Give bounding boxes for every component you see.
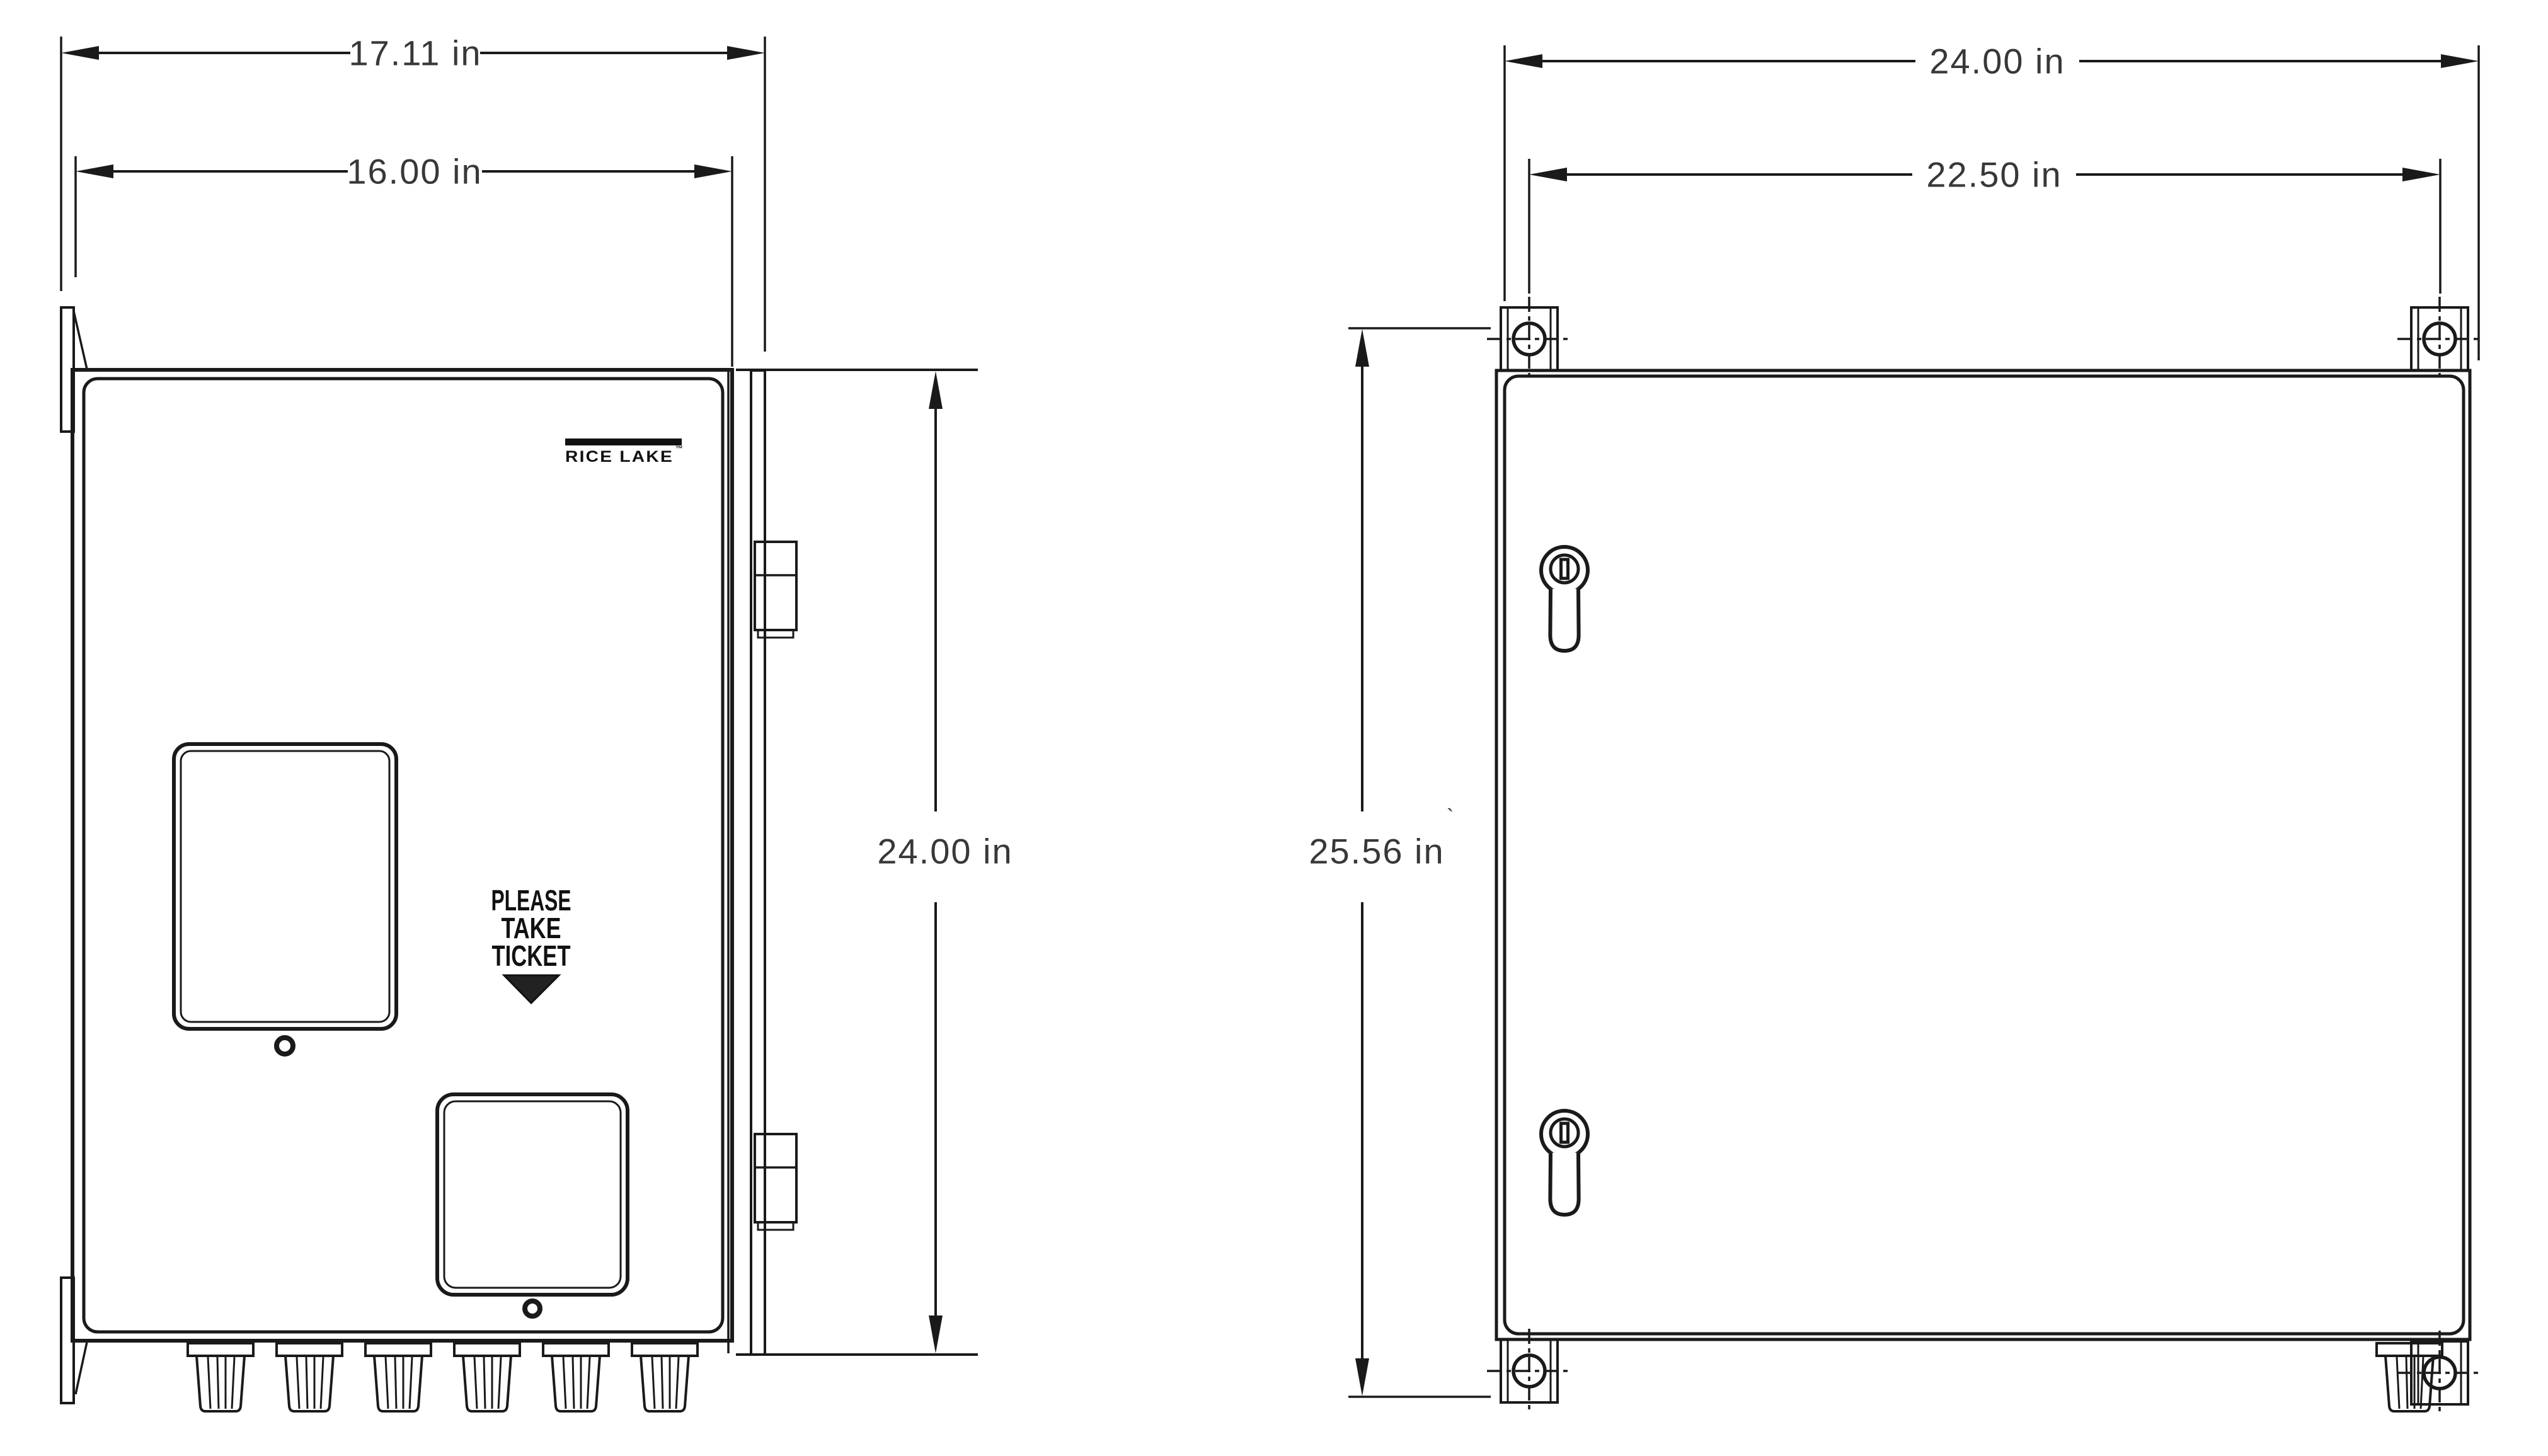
- enclosure-body-outline: [72, 370, 732, 1341]
- dim-label: 25.56 in: [1309, 832, 1444, 871]
- cable-gland-6: [632, 1343, 697, 1411]
- dim-label: 24.00 in: [1929, 42, 2065, 81]
- arrowhead-right: [2402, 168, 2440, 181]
- dim-label: 16.00 in: [347, 152, 482, 192]
- logo-trademark: ™: [675, 444, 683, 453]
- arrowhead-up: [1355, 329, 1369, 367]
- arrowhead-right: [727, 46, 765, 60]
- dim-front-door-width: 16.00 in: [76, 152, 732, 192]
- enclosure-body-outline: [1496, 370, 2470, 1339]
- mount-foot-bottom-right: [2397, 1331, 2482, 1415]
- latch-block-lower: [755, 1134, 796, 1230]
- dim-front-overall-width: 17.11 in: [61, 33, 765, 73]
- drawing-canvas: RICE LAKE ™ PLEASE TAKE TICKET: [0, 0, 2548, 1456]
- logo-text: RICE LAKE: [565, 448, 674, 466]
- arrowhead-down: [1355, 1358, 1369, 1396]
- dim-side-mount-spacing: 22.50 in: [1529, 155, 2440, 195]
- window-lock-screw: [277, 1038, 293, 1054]
- take-ticket-label: PLEASE TAKE TICKET: [491, 884, 571, 1003]
- ticket-dispenser-window: [437, 1094, 628, 1295]
- arrowhead-left: [61, 46, 99, 60]
- bracket-gusset-line: [74, 311, 87, 369]
- cable-gland-1: [188, 1343, 253, 1411]
- cable-gland-5: [543, 1343, 609, 1411]
- stray-tick-mark: `: [1447, 805, 1454, 829]
- mount-foot-bottom-left: [1487, 1329, 1571, 1413]
- enclosure-dimension-drawing: RICE LAKE ™ PLEASE TAKE TICKET: [0, 0, 2548, 1456]
- arrowhead-up: [929, 371, 943, 409]
- side-flange: [751, 370, 765, 1355]
- dim-side-overall-height: 25.56 in `: [1309, 329, 1454, 1396]
- dispenser-lock-screw: [525, 1301, 540, 1316]
- mount-foot-top-left: [1487, 297, 1571, 381]
- cable-gland-3: [365, 1343, 431, 1411]
- side-view: [1487, 297, 2482, 1415]
- enclosure-panel: [1505, 376, 2464, 1334]
- arrowhead-left: [1529, 168, 1567, 181]
- dimension-annotations: 17.11 in 16.00 in 24.00 in 24.00 in: [61, 33, 2479, 1397]
- arrowhead-right: [2441, 54, 2479, 68]
- down-arrow-icon: [504, 975, 559, 1003]
- arrowhead-down: [929, 1316, 943, 1353]
- dim-label: 17.11 in: [348, 33, 481, 73]
- cable-gland-2: [277, 1343, 342, 1411]
- mount-foot-top-right: [2397, 297, 2482, 381]
- ticket-label-line3: TICKET: [492, 939, 571, 972]
- extension-lines: [61, 37, 2479, 1397]
- dim-front-height: 24.00 in: [877, 371, 1013, 1353]
- dim-side-overall-width: 24.00 in: [1505, 42, 2479, 81]
- bracket-gusset-line: [76, 1342, 87, 1394]
- dim-label: 24.00 in: [877, 832, 1013, 871]
- key-lock-lower: [1541, 1111, 1588, 1215]
- latch-block-upper: [755, 542, 796, 638]
- dim-label: 22.50 in: [1926, 155, 2062, 195]
- logo-bar: [565, 439, 682, 445]
- cable-gland-4: [454, 1343, 520, 1411]
- arrowhead-left: [1505, 54, 1542, 68]
- cable-gland-side: [2377, 1343, 2442, 1411]
- key-lock-upper: [1541, 547, 1588, 651]
- arrowhead-right: [694, 164, 732, 178]
- front-view: RICE LAKE ™ PLEASE TAKE TICKET: [61, 307, 796, 1411]
- arrowhead-left: [76, 164, 113, 178]
- display-window: [174, 744, 396, 1029]
- rice-lake-logo: RICE LAKE ™: [565, 439, 683, 466]
